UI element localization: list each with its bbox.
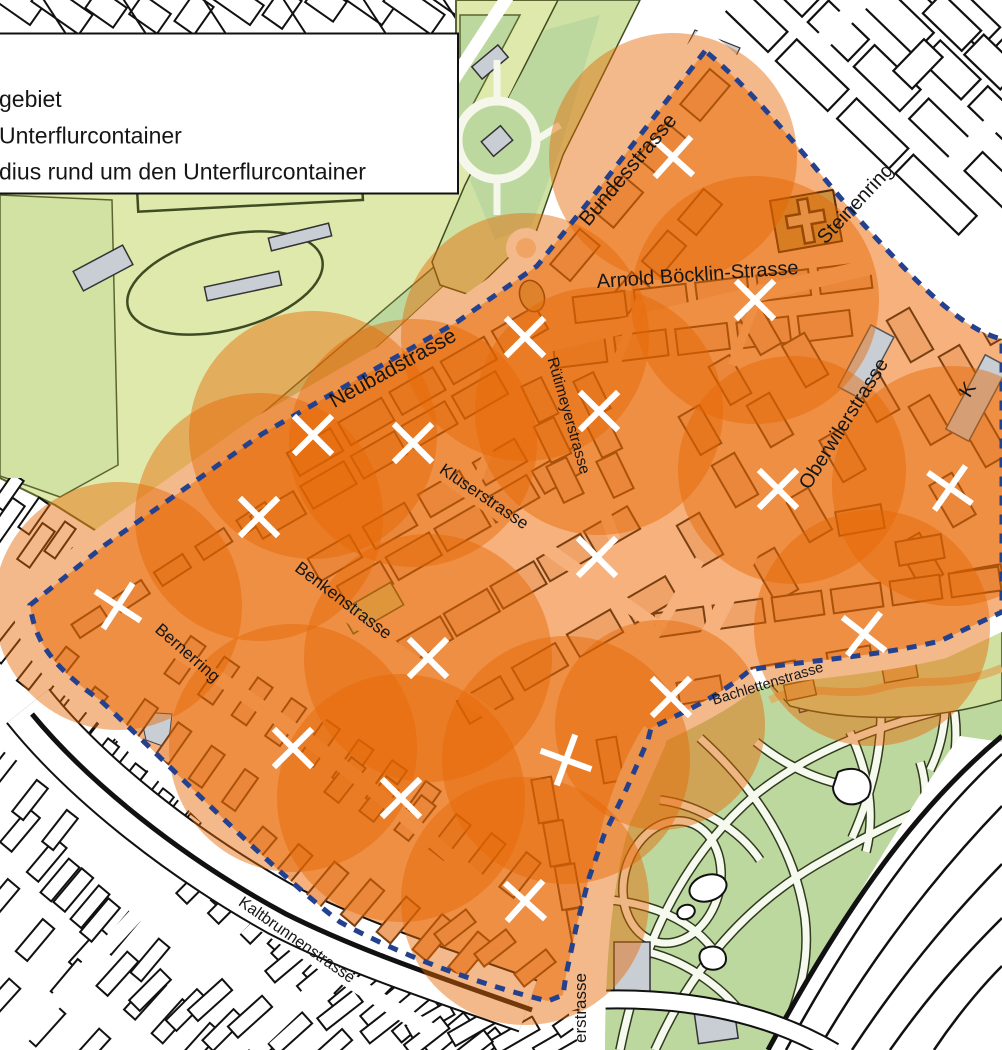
svg-text:Unterflurcontainer: Unterflurcontainer [0,123,182,149]
svg-text:gebiet: gebiet [0,86,62,112]
svg-text:erstrasse: erstrasse [571,973,590,1043]
svg-text:dius rund um den Unterflurcont: dius rund um den Unterflurcontainer [0,159,366,185]
